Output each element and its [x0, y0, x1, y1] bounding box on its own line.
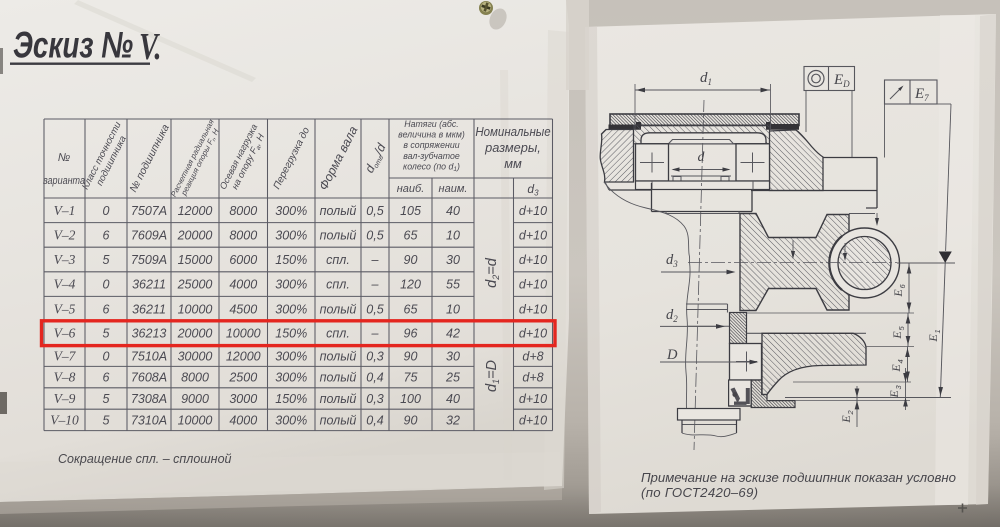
- svg-text:V–2: V–2: [54, 228, 76, 243]
- svg-text:25: 25: [445, 371, 460, 385]
- svg-text:полый: полый: [320, 392, 357, 406]
- svg-text:E: E: [891, 289, 905, 298]
- svg-text:90: 90: [404, 414, 418, 428]
- svg-text:V–9: V–9: [54, 391, 76, 406]
- svg-text:0,5: 0,5: [366, 204, 383, 218]
- svg-text:Эскиз №: Эскиз №: [13, 24, 133, 66]
- svg-text:7510А: 7510А: [131, 349, 167, 363]
- svg-text:вал-зубчатое: вал-зубчатое: [403, 151, 460, 161]
- svg-text:36211: 36211: [132, 278, 166, 292]
- svg-text:полый: полый: [320, 229, 357, 243]
- svg-text:12000: 12000: [178, 204, 213, 218]
- svg-text:120: 120: [400, 278, 421, 292]
- svg-text:0,3: 0,3: [366, 349, 383, 363]
- svg-text:7608А: 7608А: [131, 371, 167, 385]
- svg-text:6: 6: [103, 371, 110, 385]
- svg-text:8000: 8000: [181, 371, 209, 385]
- svg-text:20000: 20000: [177, 229, 213, 243]
- svg-text:d2=d: d2=d: [484, 257, 501, 288]
- svg-text:10000: 10000: [178, 414, 213, 428]
- svg-text:наиб.: наиб.: [397, 183, 425, 195]
- svg-text:E: E: [926, 334, 940, 343]
- svg-text:40: 40: [446, 392, 460, 406]
- svg-text:7308А: 7308А: [131, 392, 167, 406]
- svg-text:E: E: [839, 415, 853, 424]
- svg-text:1: 1: [933, 329, 942, 333]
- svg-text:12000: 12000: [226, 349, 261, 363]
- svg-text:D: D: [666, 347, 678, 363]
- svg-text:d+8: d+8: [522, 371, 543, 385]
- svg-text:d+10: d+10: [519, 302, 547, 316]
- svg-text:55: 55: [446, 278, 460, 292]
- svg-text:150%: 150%: [275, 327, 307, 341]
- svg-text:d+10: d+10: [519, 204, 547, 218]
- svg-text:150%: 150%: [275, 253, 307, 267]
- svg-text:наим.: наим.: [439, 183, 468, 195]
- svg-text:d1=D: d1=D: [484, 360, 501, 392]
- svg-text:300%: 300%: [275, 204, 307, 218]
- svg-text:(по ГОСТ2420–69): (по ГОСТ2420–69): [641, 485, 758, 500]
- svg-text:300%: 300%: [275, 229, 307, 243]
- svg-text:E: E: [890, 331, 904, 340]
- svg-text:300%: 300%: [275, 278, 307, 292]
- svg-text:96: 96: [404, 327, 418, 341]
- svg-text:30000: 30000: [178, 349, 213, 363]
- svg-text:E: E: [889, 364, 903, 373]
- svg-text:d+10: d+10: [519, 392, 547, 406]
- svg-text:V–5: V–5: [54, 301, 76, 316]
- svg-text:100: 100: [400, 392, 421, 406]
- svg-text:–: –: [371, 278, 380, 292]
- svg-text:2500: 2500: [228, 371, 257, 385]
- svg-text:30: 30: [446, 253, 460, 267]
- svg-text:мм: мм: [504, 156, 522, 171]
- svg-text:300%: 300%: [275, 302, 307, 316]
- svg-text:полый: полый: [320, 204, 357, 218]
- svg-text:V–8: V–8: [54, 370, 76, 385]
- svg-text:0: 0: [103, 278, 110, 292]
- svg-text:V–1: V–1: [54, 203, 76, 218]
- svg-text:Сокращение спл. – сплошной: Сокращение спл. – сплошной: [58, 452, 232, 466]
- svg-text:7509А: 7509А: [131, 253, 167, 267]
- svg-text:d: d: [698, 149, 705, 164]
- svg-text:в сопряжении: в сопряжении: [403, 140, 459, 150]
- svg-text:6: 6: [103, 229, 110, 243]
- svg-text:150%: 150%: [275, 392, 307, 406]
- svg-text:8000: 8000: [229, 229, 257, 243]
- svg-text:65: 65: [404, 302, 418, 316]
- svg-text:10: 10: [446, 229, 460, 243]
- svg-text:8000: 8000: [229, 204, 257, 218]
- svg-text:спл.: спл.: [326, 253, 350, 267]
- svg-text:полый: полый: [320, 349, 357, 363]
- svg-text:7507А: 7507А: [131, 204, 167, 218]
- svg-text:90: 90: [404, 349, 418, 363]
- svg-text:спл.: спл.: [326, 327, 350, 341]
- svg-text:2: 2: [846, 410, 855, 416]
- svg-text:0,3: 0,3: [366, 392, 383, 406]
- svg-text:Номинальные: Номинальные: [475, 124, 551, 139]
- svg-text:20000: 20000: [177, 327, 213, 341]
- svg-text:10000: 10000: [178, 302, 213, 316]
- svg-text:4500: 4500: [229, 302, 257, 316]
- svg-text:36213: 36213: [132, 327, 167, 341]
- svg-text:V–6: V–6: [54, 326, 76, 341]
- svg-text:V–10: V–10: [50, 413, 79, 428]
- svg-text:36211: 36211: [132, 302, 166, 316]
- svg-text:105: 105: [400, 204, 421, 218]
- svg-text:d+10: d+10: [519, 327, 547, 341]
- svg-text:300%: 300%: [275, 371, 307, 385]
- svg-text:спл.: спл.: [326, 278, 350, 292]
- svg-text:№: №: [58, 152, 71, 164]
- svg-text:7310А: 7310А: [131, 414, 167, 428]
- svg-text:40: 40: [446, 204, 460, 218]
- svg-text:32: 32: [446, 414, 460, 428]
- svg-text:5: 5: [103, 414, 110, 428]
- svg-text:d+10: d+10: [519, 278, 547, 292]
- svg-text:10: 10: [446, 302, 460, 316]
- svg-text:4: 4: [896, 359, 905, 363]
- svg-text:0: 0: [103, 204, 110, 218]
- svg-text:E: E: [887, 390, 901, 399]
- svg-text:300%: 300%: [275, 349, 307, 363]
- svg-text:65: 65: [404, 229, 418, 243]
- svg-text:90: 90: [404, 253, 418, 267]
- svg-text:3000: 3000: [229, 392, 257, 406]
- svg-text:5: 5: [103, 392, 110, 406]
- svg-text:Натяги (абс.: Натяги (абс.: [404, 119, 458, 129]
- svg-text:полый: полый: [320, 371, 357, 385]
- svg-text:9000: 9000: [181, 392, 209, 406]
- svg-text:30: 30: [446, 349, 460, 363]
- svg-text:размеры,: размеры,: [484, 140, 541, 155]
- svg-text:75: 75: [404, 371, 418, 385]
- svg-text:5: 5: [103, 253, 110, 267]
- svg-text:4000: 4000: [229, 414, 257, 428]
- svg-text:d+8: d+8: [522, 349, 543, 363]
- svg-text:d+10: d+10: [519, 229, 547, 243]
- svg-text:V–3: V–3: [54, 252, 76, 267]
- svg-text:6000: 6000: [229, 253, 257, 267]
- svg-text:–: –: [371, 253, 380, 267]
- svg-text:25000: 25000: [177, 278, 213, 292]
- svg-text:–: –: [371, 327, 380, 341]
- svg-text:0: 0: [103, 349, 110, 363]
- svg-text:6: 6: [103, 302, 110, 316]
- svg-text:0,5: 0,5: [366, 302, 383, 316]
- svg-text:V.: V.: [139, 26, 161, 68]
- svg-text:0,5: 0,5: [366, 229, 383, 243]
- svg-text:300%: 300%: [275, 414, 307, 428]
- svg-text:4000: 4000: [229, 278, 257, 292]
- svg-text:0,4: 0,4: [366, 414, 383, 428]
- svg-text:10000: 10000: [226, 327, 261, 341]
- svg-text:0,4: 0,4: [366, 371, 383, 385]
- svg-text:полый: полый: [320, 302, 357, 316]
- svg-text:V–4: V–4: [54, 277, 76, 292]
- svg-text:колесо (по d1): колесо (по d1): [403, 161, 460, 173]
- svg-text:величина в мкм): величина в мкм): [398, 130, 465, 140]
- svg-text:d+10: d+10: [519, 253, 547, 267]
- svg-text:7609А: 7609А: [131, 229, 167, 243]
- svg-text:V–7: V–7: [54, 348, 77, 363]
- svg-text:42: 42: [446, 327, 460, 341]
- svg-text:15000: 15000: [178, 253, 213, 267]
- svg-text:варианта: варианта: [43, 175, 85, 187]
- svg-text:5: 5: [103, 327, 110, 341]
- svg-text:d+10: d+10: [519, 414, 547, 428]
- svg-text:Примечание на эскизе подшип: Примечание на эскизе подшипник показан у…: [641, 470, 956, 485]
- svg-text:полый: полый: [320, 414, 357, 428]
